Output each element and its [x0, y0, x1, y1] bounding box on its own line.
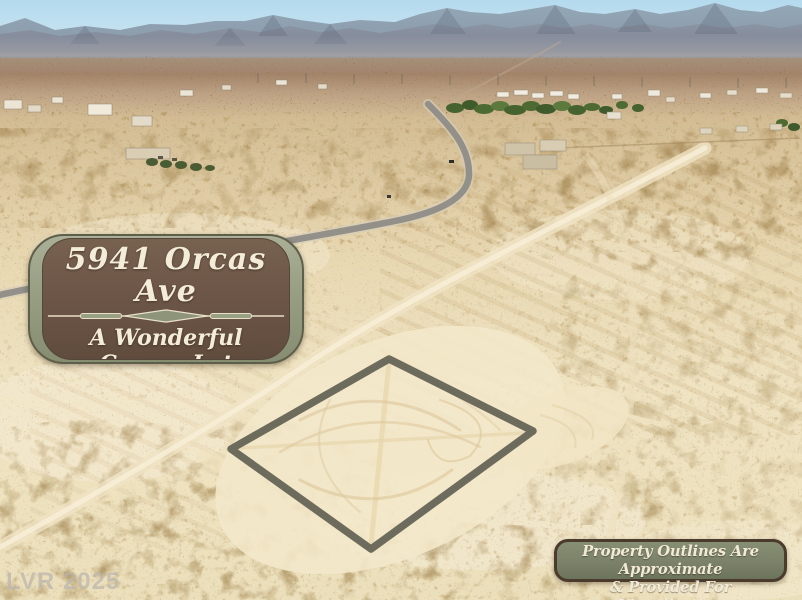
description-line-1: A Wonderful Corner Lot [43, 325, 289, 360]
address-sign: 5941 Orcas Ave A Wonderful Corner Lot Wi… [28, 234, 304, 364]
address-text: 5941 Orcas Ave [43, 244, 289, 308]
listing-photo: 5941 Orcas Ave A Wonderful Corner Lot Wi… [0, 0, 802, 600]
car [387, 195, 391, 198]
car [449, 160, 454, 163]
disclaimer-sign: Property Outlines Are Approximate & Prov… [554, 539, 787, 582]
address-sign-panel: 5941 Orcas Ave A Wonderful Corner Lot Wi… [42, 238, 290, 360]
disclaimer-line-2: & Provided For Visualization [557, 579, 784, 600]
sign-divider-ornament [43, 309, 289, 323]
watermark: LVR 2025 [6, 568, 120, 596]
disclaimer-line-1: Property Outlines Are Approximate [557, 543, 784, 578]
